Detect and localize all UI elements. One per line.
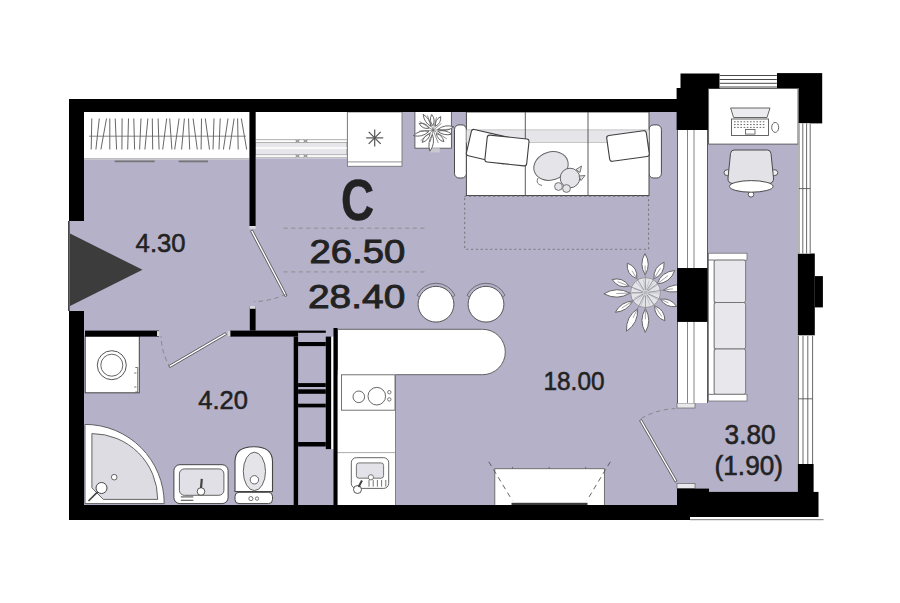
svg-text:4.20: 4.20 [198,385,248,415]
svg-text:18.00: 18.00 [544,366,605,396]
svg-text:C: C [341,167,374,232]
svg-text:28.40: 28.40 [308,278,405,315]
svg-text:4.30: 4.30 [136,228,186,258]
svg-text:26.50: 26.50 [310,234,406,270]
svg-text:(1.90): (1.90) [715,451,783,481]
svg-text:3.80: 3.80 [725,420,776,450]
